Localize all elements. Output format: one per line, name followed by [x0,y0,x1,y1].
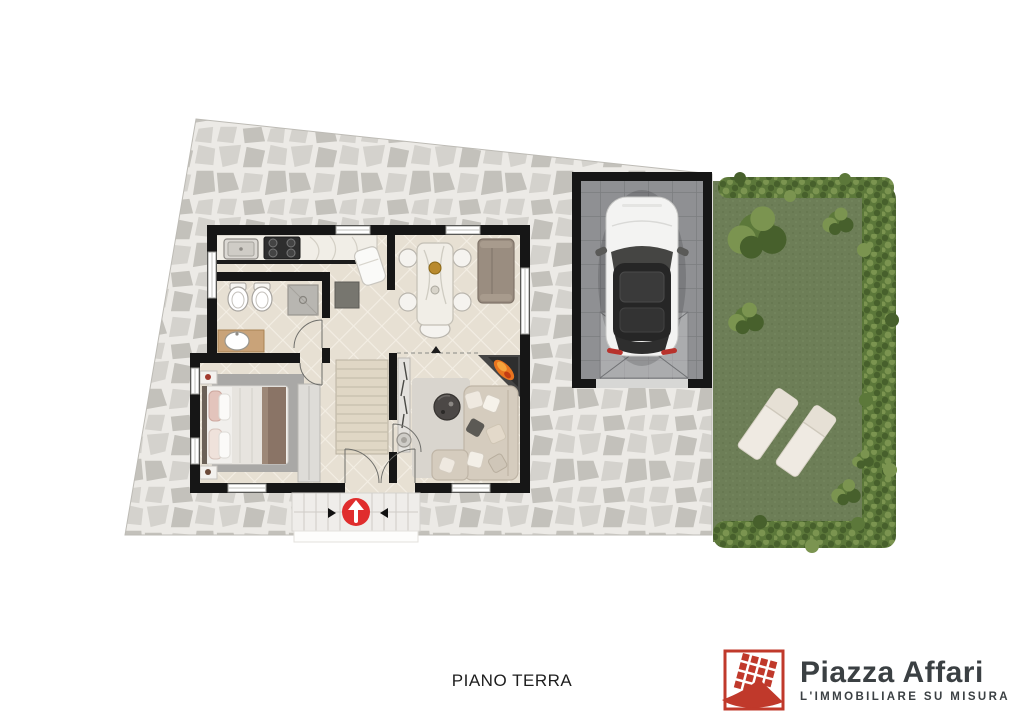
dining-chair [453,249,471,267]
pillow [466,451,484,469]
entrance-arrow-icon [342,498,370,526]
dining-sofa [478,239,514,303]
dining-chair [453,293,471,311]
brand-logo-icon [721,647,787,713]
centerpiece-icon [429,262,441,274]
kitchen-sink-icon [224,239,258,259]
bedroom [200,371,320,482]
brand-tagline: L'IMMOBILIARE SU MISURA [800,691,1010,703]
car [594,190,689,366]
hedge-bottom [713,521,896,548]
garden [713,172,899,553]
toilet-icon [252,283,272,311]
floor-plan [0,0,1024,724]
dining-chair [399,293,417,311]
coffee-table-icon [434,394,460,420]
hedge-right [862,184,896,544]
dining-table [417,243,453,325]
brand-name: Piazza Affari [800,657,1010,689]
console-shelf [397,358,411,452]
duvet [232,387,266,464]
vanity-sink-icon [218,330,264,352]
nightstand [200,371,217,384]
nightstand [200,466,217,479]
double-bed [202,386,288,464]
floor-plan-page: PIANO TERRA Piazza Affari L'IMMOBILIARE … [0,0,1024,724]
dining-chair [399,249,417,267]
hallway-stairs [336,360,388,454]
stove-icon [264,237,300,259]
bidet-icon [228,283,248,311]
storage-unit [335,282,359,308]
brand-logo: Piazza Affari L'IMMOBILIARE SU MISURA [721,647,1010,713]
staircase [336,360,388,454]
entrance-steps [292,493,420,542]
garage [572,172,712,388]
wardrobe [298,384,320,482]
kitchen [215,235,377,264]
shower-icon [288,285,318,315]
